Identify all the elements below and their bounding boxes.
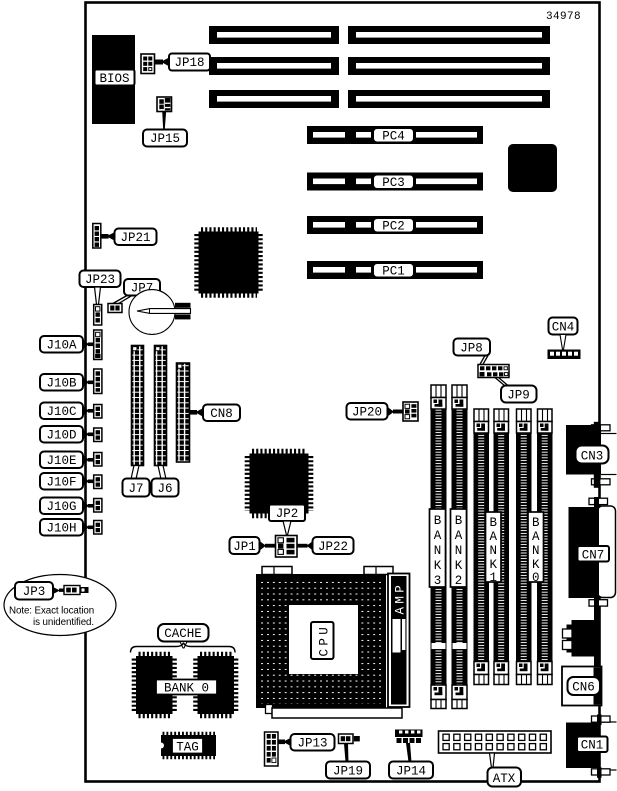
svg-text:CN7: CN7: [582, 549, 605, 563]
svg-text:J7: J7: [128, 482, 143, 496]
svg-text:A: A: [532, 530, 540, 544]
svg-text:JP21: JP21: [120, 231, 150, 245]
svg-text:BANK 0: BANK 0: [164, 682, 209, 696]
svg-text:AMP: AMP: [394, 582, 408, 615]
svg-text:CN8: CN8: [210, 407, 233, 421]
svg-text:TAG: TAG: [176, 741, 199, 755]
svg-text:JP20: JP20: [352, 406, 382, 420]
svg-text:K: K: [434, 559, 442, 573]
svg-text:K: K: [532, 558, 540, 572]
svg-text:JP23: JP23: [85, 273, 115, 287]
svg-text:J10G: J10G: [46, 500, 76, 514]
svg-text:J6: J6: [157, 482, 172, 496]
svg-text:JP8: JP8: [460, 342, 483, 356]
svg-text:JP14: JP14: [396, 765, 426, 779]
svg-text:A: A: [489, 530, 497, 544]
svg-text:N: N: [532, 544, 540, 558]
svg-text:is unidentified.: is unidentified.: [33, 617, 94, 628]
svg-text:CN1: CN1: [581, 739, 604, 753]
svg-text:K: K: [455, 559, 463, 573]
svg-text:JP15: JP15: [150, 132, 180, 146]
svg-text:J10F: J10F: [46, 476, 76, 490]
svg-text:J10C: J10C: [46, 405, 76, 419]
svg-text:J10B: J10B: [46, 377, 77, 391]
svg-text:1: 1: [489, 571, 497, 585]
svg-text:JP22: JP22: [318, 540, 348, 554]
svg-text:CN6: CN6: [572, 681, 595, 695]
svg-text:B: B: [489, 516, 497, 530]
svg-text:CACHE: CACHE: [164, 627, 202, 641]
svg-text:J10A: J10A: [46, 339, 77, 353]
svg-text:PC4: PC4: [382, 130, 405, 144]
svg-text:A: A: [434, 529, 442, 543]
svg-text:B: B: [532, 516, 540, 530]
svg-text:CN4: CN4: [552, 321, 575, 335]
svg-text:JP9: JP9: [507, 389, 530, 403]
svg-text:B: B: [434, 514, 442, 528]
svg-text:JP3: JP3: [23, 585, 46, 599]
svg-text:34978: 34978: [546, 11, 581, 23]
svg-text:3: 3: [434, 574, 442, 588]
svg-text:N: N: [455, 544, 463, 558]
svg-text:JP1: JP1: [233, 540, 256, 554]
svg-text:J10E: J10E: [46, 454, 76, 468]
svg-text:J10D: J10D: [46, 429, 76, 443]
svg-text:2: 2: [455, 574, 463, 588]
svg-text:CN3: CN3: [581, 450, 604, 464]
svg-text:K: K: [489, 558, 497, 572]
svg-text:N: N: [489, 544, 497, 558]
svg-text:PC2: PC2: [382, 220, 405, 234]
svg-text:N: N: [434, 544, 442, 558]
svg-text:JP13: JP13: [297, 737, 327, 751]
svg-text:BIOS: BIOS: [99, 72, 129, 86]
svg-text:Note: Exact location: Note: Exact location: [9, 606, 94, 617]
svg-text:CPU: CPU: [318, 624, 332, 657]
svg-text:ATX: ATX: [493, 772, 516, 786]
svg-text:0: 0: [532, 571, 540, 585]
svg-text:A: A: [455, 529, 463, 543]
svg-text:PC1: PC1: [382, 265, 405, 279]
svg-text:J10H: J10H: [46, 522, 76, 536]
svg-text:B: B: [455, 514, 463, 528]
svg-text:PC3: PC3: [382, 176, 405, 190]
svg-text:JP18: JP18: [174, 56, 204, 70]
svg-text:JP19: JP19: [333, 765, 363, 779]
svg-text:JP2: JP2: [276, 507, 299, 521]
